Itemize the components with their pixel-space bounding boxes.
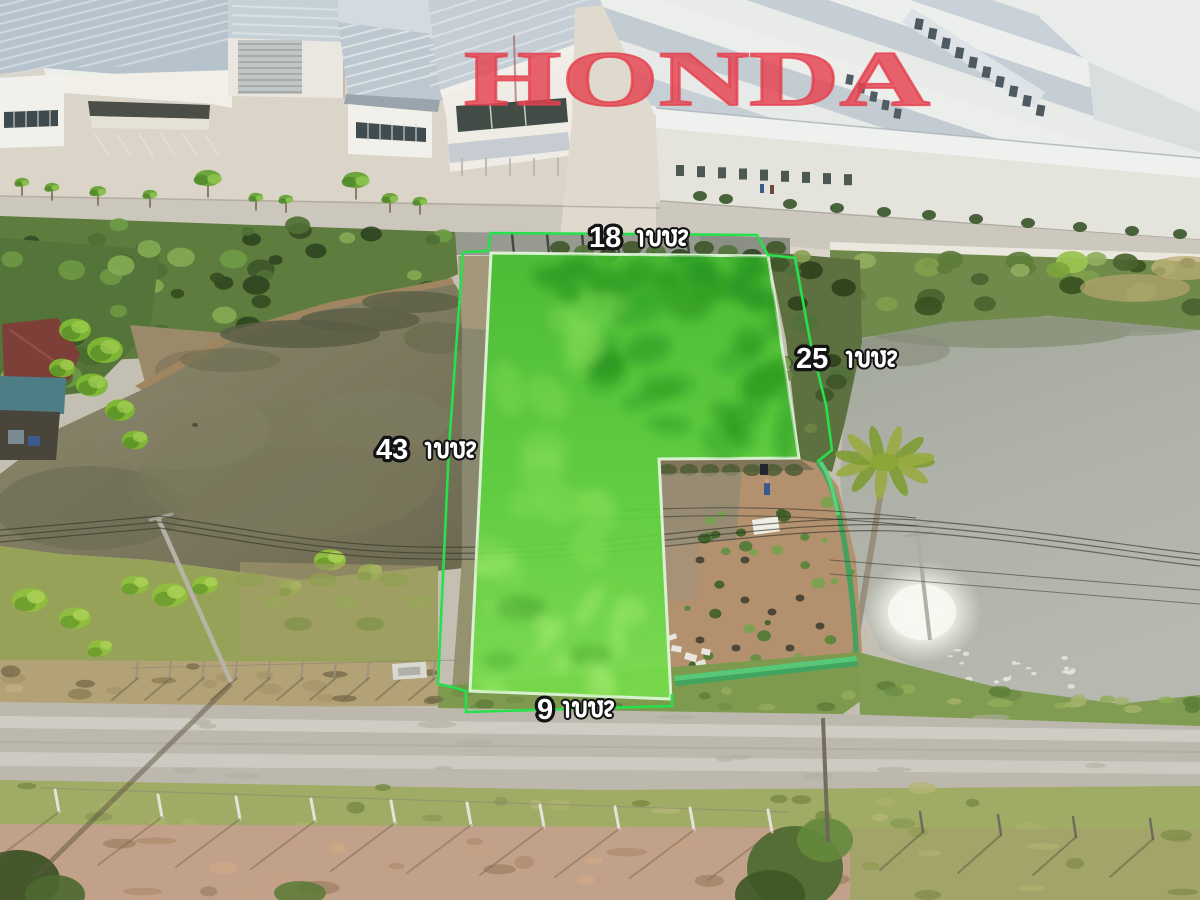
svg-text:43: 43: [376, 434, 408, 466]
svg-text:25: 25: [796, 343, 828, 375]
svg-text:9: 9: [537, 694, 553, 726]
svg-text:HONDA: HONDA: [464, 35, 930, 122]
svg-text:18: 18: [589, 222, 621, 254]
